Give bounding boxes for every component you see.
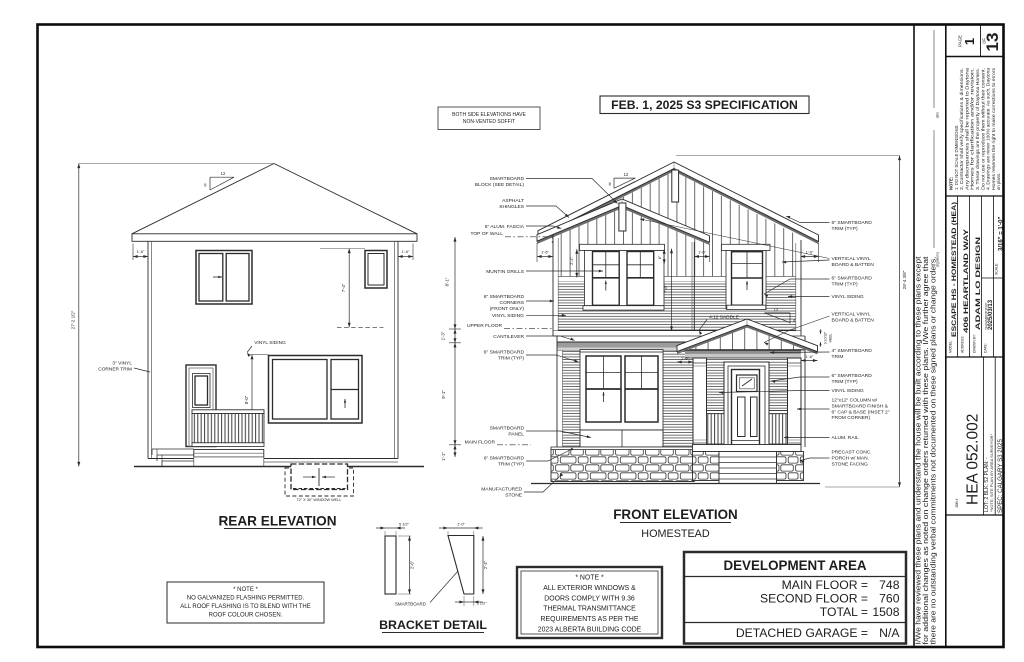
svg-text:4. Drawings are never 100% acc: 4. Drawings are never 100% accurate. As … [986,67,991,190]
svg-text:DEVELOPMENT AREA: DEVELOPMENT AREA [723,558,866,573]
svg-text:8'-0": 8'-0" [244,395,249,404]
svg-text:3 10/16": 3 10/16" [824,331,828,344]
svg-text:1'-6": 1'-6" [402,249,410,254]
svg-text:BOARD & BATTEN: BOARD & BATTEN [832,262,875,268]
svg-text:TOTAL =: TOTAL = [820,605,868,619]
svg-text:JOB #: JOB # [955,498,959,508]
svg-text:2'-4": 2'-4" [483,560,488,569]
svg-text:1'-1": 1'-1" [441,452,446,461]
svg-text:3" VINYL: 3" VINYL [112,361,132,367]
svg-text:2. Contractor shall verify spe: 2. Contractor shall verify specification… [959,68,964,190]
svg-text:1. DO NOT SCALE DIMENSIONS.: 1. DO NOT SCALE DIMENSIONS. [954,124,959,190]
svg-text:Homes for clarification and/or: Homes for clarification and/or revision. [970,68,975,190]
svg-text:1'-6": 1'-6" [806,354,814,359]
svg-text:FEB. 1, 2025 S3 SPECIFICATION: FEB. 1, 2025 S3 SPECIFICATION [611,98,798,112]
svg-text:1508: 1508 [872,605,899,619]
svg-text:DETACHED GARAGE =: DETACHED GARAGE = [736,626,868,640]
svg-text:NOTE:: NOTE: [949,177,954,190]
svg-text:VINYL SIDING: VINYL SIDING [492,313,524,319]
svg-text:2'-4": 2'-4" [569,257,574,265]
svg-text:*NOTE: SITE PLAN BY AREA SURVE: *NOTE: SITE PLAN BY AREA SURVEYOR* [990,433,994,512]
svg-text:SPEC: CALGARY S3 2025: SPEC: CALGARY S3 2025 [997,439,1004,513]
svg-text:4:12 SADDLE: 4:12 SADDLE [709,314,739,320]
svg-text:UPPER FLOOR: UPPER FLOOR [467,323,503,329]
svg-text:MAIN FLOOR: MAIN FLOOR [465,439,496,445]
svg-text:BLOCK (SEE DETAIL): BLOCK (SEE DETAIL) [475,182,524,188]
svg-text:12"x12" COLUMN w/: 12"x12" COLUMN w/ [832,398,878,404]
svg-text:1'-6": 1'-6" [541,249,549,254]
svg-text:STONE FACING: STONE FACING [832,461,869,467]
svg-text:NO GALVANIZED FLASHING PERMITT: NO GALVANIZED FLASHING PERMITTED. [187,596,305,602]
svg-text:12: 12 [624,172,629,177]
svg-text:2'-6": 2'-6" [409,560,414,569]
svg-text:DATE:: DATE: [984,343,988,353]
svg-text:FRONT ELEVATION: FRONT ELEVATION [613,507,737,522]
svg-text:6" SMARTBOARD: 6" SMARTBOARD [484,456,525,462]
svg-text:3. These drawings are the prop: 3. These drawings are the property of Da… [975,68,980,190]
svg-text:Do not use or reproduce them w: Do not use or reproduce them without the… [980,68,985,190]
svg-text:there are no outstanding verba: there are no outstanding verbal commitme… [929,257,938,645]
svg-text:7'-6": 7'-6" [663,285,668,293]
svg-text:HOMESTEAD: HOMESTEAD [641,528,710,540]
svg-text:TOP OF WALL: TOP OF WALL [470,231,503,237]
svg-text:6": 6" [657,255,662,259]
svg-text:MUNTIN GRILLS: MUNTIN GRILLS [486,269,525,275]
svg-text:ROOF COLOUR CHOSEN.: ROOF COLOUR CHOSEN. [209,613,283,619]
svg-text:NON-VENTED SOFFIT: NON-VENTED SOFFIT [463,119,515,125]
svg-text:6" SMARTBOARD: 6" SMARTBOARD [832,373,873,379]
svg-text:6" SMARTBOARD: 6" SMARTBOARD [832,220,873,226]
svg-text:SMARTBOARD: SMARTBOARD [490,176,525,182]
svg-text:5 1/2": 5 1/2" [399,522,410,527]
svg-text:1'-6": 1'-6" [137,249,145,254]
svg-text:VINYL SIDING: VINYL SIDING [832,294,864,300]
svg-text:1'-3": 1'-3" [441,331,446,340]
svg-text:PANEL: PANEL [508,432,524,438]
svg-text:PRECAST CONC.: PRECAST CONC. [832,450,872,456]
svg-text:SMARTBOARD: SMARTBOARD [490,426,525,432]
svg-text:ESCAPE HS - HOMESTEAD (HEA): ESCAPE HS - HOMESTEAD (HEA) [951,202,958,337]
svg-text:VERTICAL VINYL: VERTICAL VINYL [832,256,871,262]
svg-text:SMARTBOARD: SMARTBOARD [395,602,426,607]
svg-text:13: 13 [983,33,1002,52]
svg-text:6" CAP & BASE (INSET 2": 6" CAP & BASE (INSET 2" [832,409,890,415]
svg-text:ADDRESS:: ADDRESS: [961,336,965,353]
svg-text:TRIM (TYP): TRIM (TYP) [498,462,524,468]
svg-text:ALL ROOF FLASHING IS TO BLEND: ALL ROOF FLASHING IS TO BLEND WITH THE [180,604,310,610]
svg-text:BOARD & BATTEN: BOARD & BATTEN [832,318,875,324]
svg-text:SHINGLES: SHINGLES [499,204,524,210]
svg-text:1'-0": 1'-0" [457,522,465,527]
svg-text:YEAR/MONTH/DAY: YEAR/MONTH/DAY [984,302,988,330]
svg-text:date: date [936,112,940,118]
svg-text:(FRONT ONLY): (FRONT ONLY) [490,306,525,312]
svg-text:12: 12 [774,307,779,312]
svg-text:MAIN FLOOR =: MAIN FLOOR = [782,578,868,592]
svg-text:12: 12 [221,171,226,176]
svg-text:27'-2 1/2": 27'-2 1/2" [71,310,76,329]
svg-text:DOORS COMPLY WITH 9.36: DOORS COMPLY WITH 9.36 [544,595,635,602]
svg-text:MODEL:: MODEL: [949,340,953,353]
svg-text:Homes reserves the right to ma: Homes reserves the right to make correct… [991,68,996,190]
svg-text:2025/03/13: 2025/03/13 [988,299,994,330]
svg-text:VERTICAL VINYL: VERTICAL VINYL [832,312,871,318]
svg-text:ADAM LO DESIGN: ADAM LO DESIGN [975,236,982,330]
svg-text:SECOND FLOOR =: SECOND FLOOR = [760,592,868,606]
svg-text:TRIM (TYP): TRIM (TYP) [832,379,858,385]
svg-text:THERMAL TRANSMITTANCE: THERMAL TRANSMITTANCE [543,606,636,613]
svg-text:CANTILEVER: CANTILEVER [493,334,524,340]
svg-text:SMARTBOARD FINISH &: SMARTBOARD FINISH & [832,403,889,409]
svg-text:72" X 30" WINDOW WELL: 72" X 30" WINDOW WELL [297,498,342,502]
svg-text:* NOTE *: * NOTE * [575,575,604,582]
svg-text:DRAWN BY:: DRAWN BY: [973,334,977,353]
svg-text:6" SMARTBOARD: 6" SMARTBOARD [832,276,873,282]
svg-text:SCALE:: SCALE: [995,263,999,275]
svg-text:STONE: STONE [505,493,522,499]
svg-text:1: 1 [962,38,977,45]
svg-text:406 HEARTLAND WAY: 406 HEARTLAND WAY [963,228,970,333]
svg-text:6" ALUM. FASCIA: 6" ALUM. FASCIA [485,224,525,230]
svg-text:HEA 052.002: HEA 052.002 [965,414,982,505]
svg-text:3 1/2": 3 1/2" [477,601,488,606]
svg-text:VINYL SIDING: VINYL SIDING [832,388,864,394]
svg-text:Any discrepancies shall be rep: Any discrepancies shall be reported to D… [964,67,969,190]
svg-text:6" SMARTBOARD: 6" SMARTBOARD [484,294,525,300]
svg-text:VINYL SIDING: VINYL SIDING [254,340,286,346]
svg-text:1'-6": 1'-6" [681,355,689,360]
svg-text:FROM CORNER): FROM CORNER) [832,415,871,421]
svg-text:PORCH w/ MAN.: PORCH w/ MAN. [832,455,870,461]
svg-text:CORNERS: CORNERS [500,300,525,306]
svg-text:ASPHALT: ASPHALT [502,198,524,204]
svg-text:TRIM (TYP): TRIM (TYP) [498,356,524,362]
svg-text:TRIM (TYP): TRIM (TYP) [832,226,858,232]
svg-text:TRIM (TYP): TRIM (TYP) [832,282,858,288]
svg-text:760: 760 [879,592,900,606]
svg-text:4" SMARTBOARD: 4" SMARTBOARD [832,348,873,354]
svg-text:ALL EXTERIOR WINDOWS &: ALL EXTERIOR WINDOWS & [543,585,636,592]
svg-text:9'-1": 9'-1" [441,390,446,399]
svg-text:TRIM: TRIM [832,354,844,360]
svg-text:REQUIREMENTS AS PER THE: REQUIREMENTS AS PER THE [541,616,639,623]
svg-text:28'-4 3/8": 28'-4 3/8" [902,270,907,289]
svg-text:1'-6": 1'-6" [698,249,706,254]
svg-text:3/16" = 1'-0": 3/16" = 1'-0" [998,217,1004,251]
svg-text:HEEL: HEEL [829,333,833,342]
svg-text:BOTH SIDE ELEVATIONS HAVE: BOTH SIDE ELEVATIONS HAVE [452,112,526,118]
svg-text:REAR ELEVATION: REAR ELEVATION [218,514,336,529]
svg-text:MANUFACTURED: MANUFACTURED [481,487,522,493]
svg-text:CORNER TRIM: CORNER TRIM [98,367,132,373]
svg-text:748: 748 [879,578,900,592]
svg-text:BRACKET DETAIL: BRACKET DETAIL [379,618,487,632]
svg-text:N/A: N/A [879,626,900,640]
svg-text:8'-1": 8'-1" [445,277,450,286]
svg-text:7'-4": 7'-4" [341,283,346,292]
svg-text:ALUM. RAIL: ALUM. RAIL [832,435,859,441]
svg-text:* NOTE *: * NOTE * [233,587,258,593]
svg-text:6" SMARTBOARD: 6" SMARTBOARD [484,350,525,356]
svg-text:on plans.: on plans. [996,173,1001,190]
svg-text:2023 ALBERTA BUILDING CODE: 2023 ALBERTA BUILDING CODE [538,627,642,634]
